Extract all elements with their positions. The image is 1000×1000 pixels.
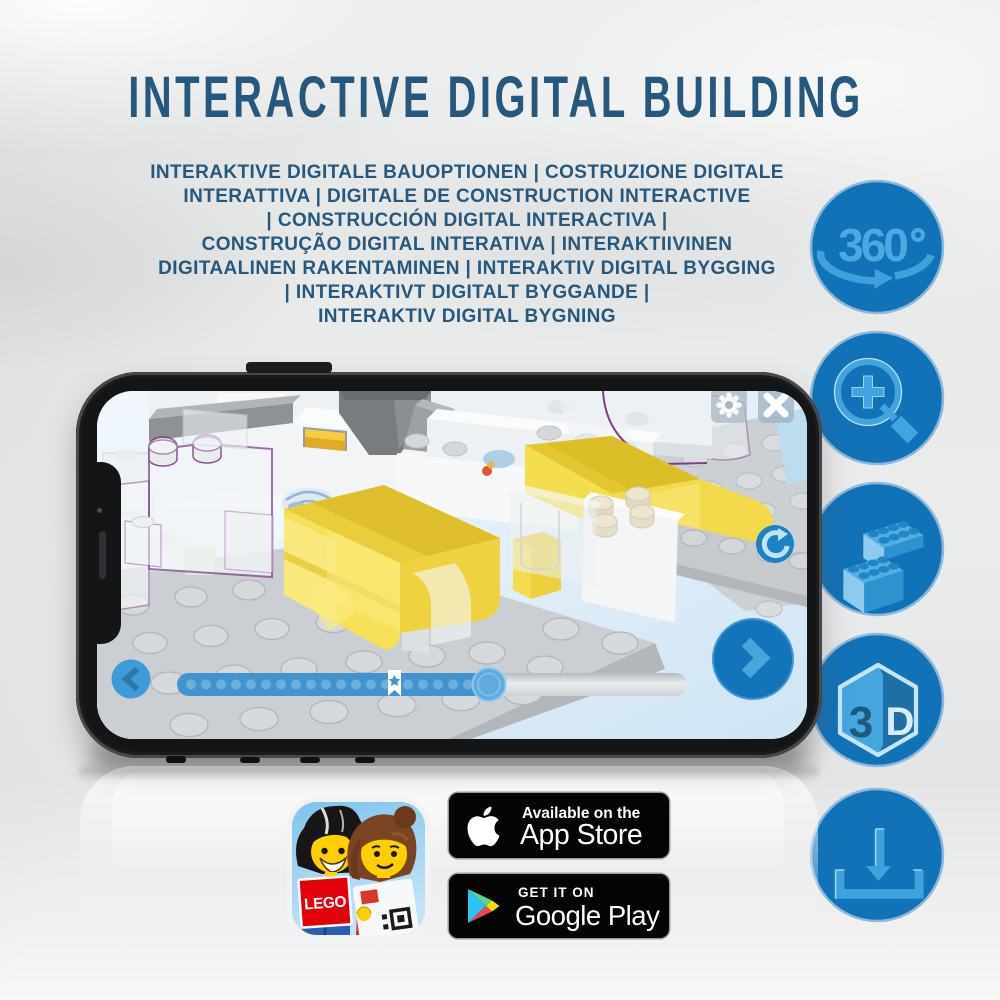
svg-text:D: D (886, 700, 915, 744)
svg-text:3: 3 (849, 698, 873, 747)
svg-text:360: 360 (838, 219, 907, 271)
svg-text:LEGO: LEGO (304, 894, 347, 914)
